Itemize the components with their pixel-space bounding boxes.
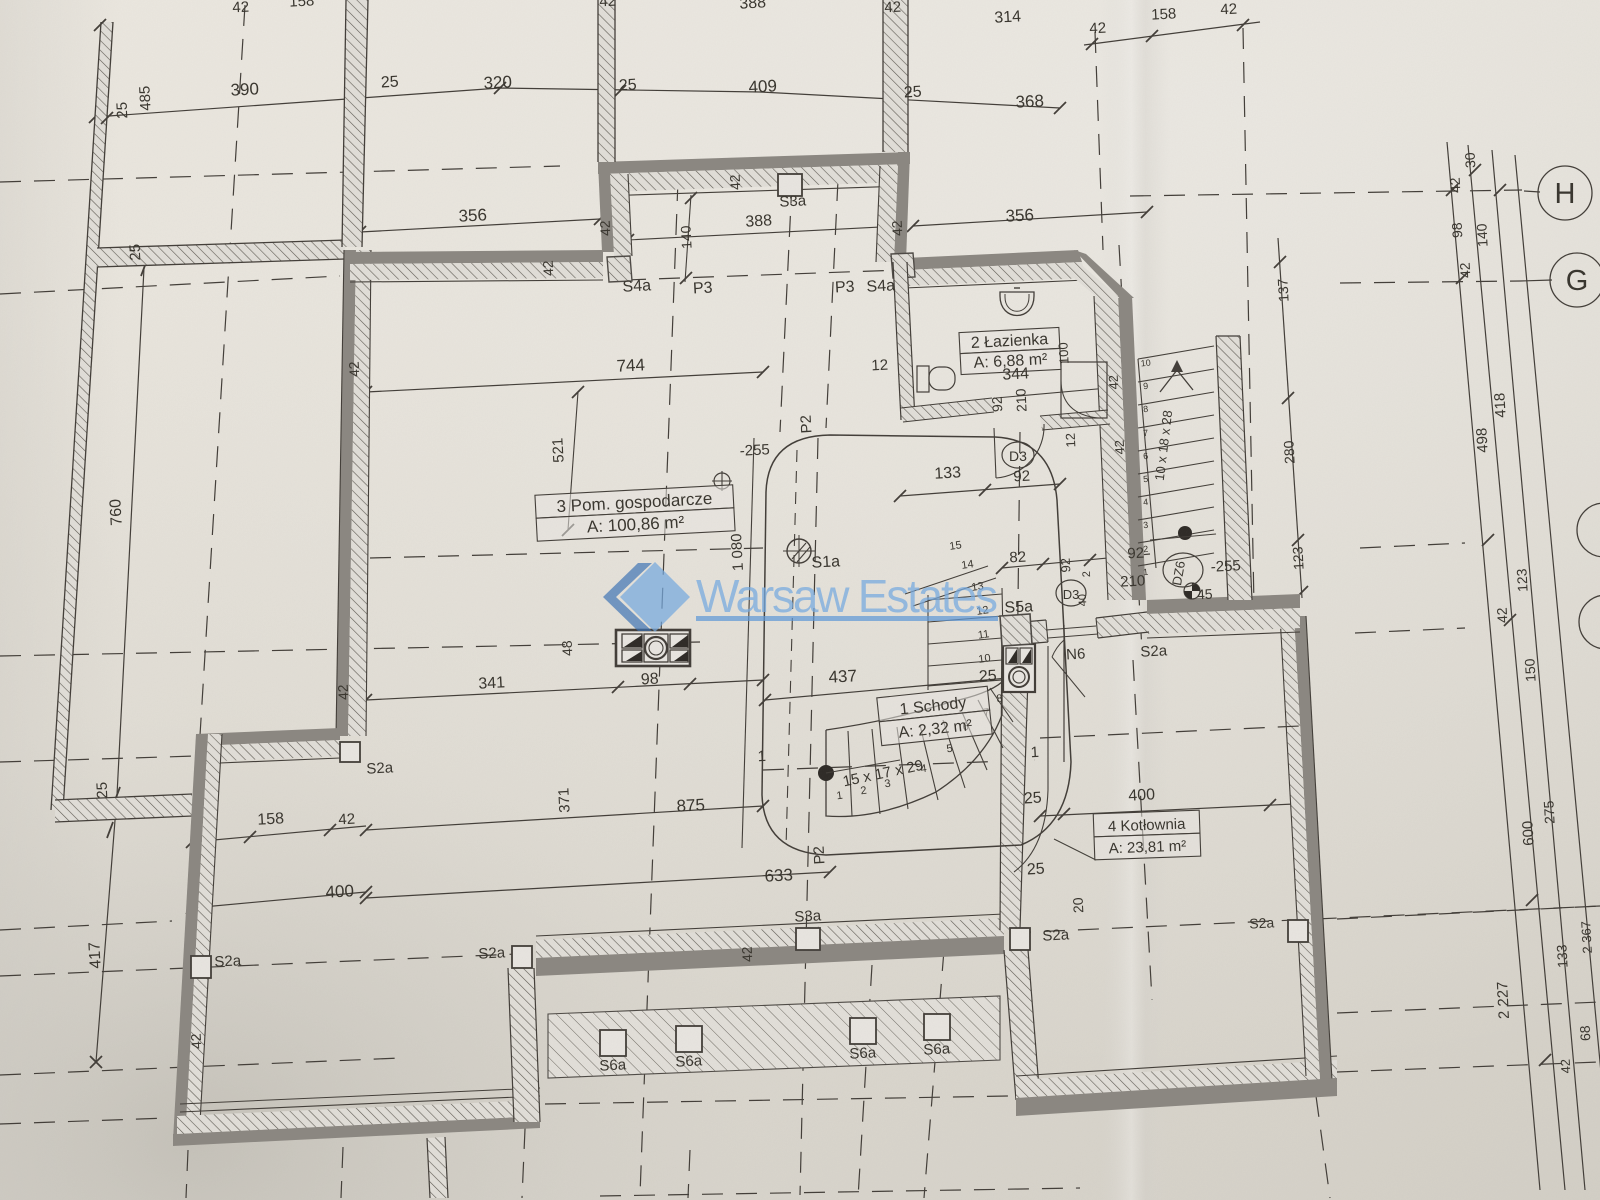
svg-text:Warsaw Estates: Warsaw Estates <box>696 570 998 622</box>
